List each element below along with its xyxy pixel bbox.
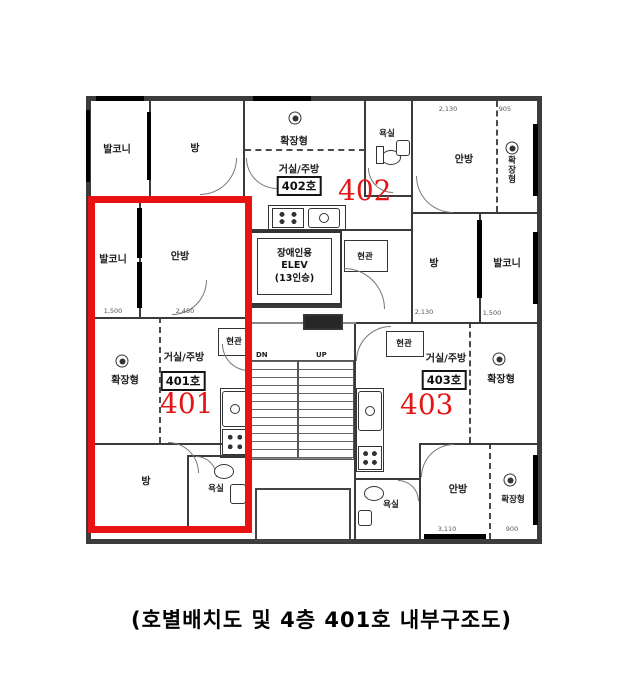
- room-label-living-403: 거실/주방: [426, 350, 466, 365]
- dimension-label: 905: [499, 105, 511, 113]
- expansion-wall-dashed: [496, 101, 498, 212]
- staircase: [248, 360, 354, 460]
- window: [477, 220, 482, 298]
- window: [533, 124, 538, 196]
- expansion-marker-icon: [506, 142, 519, 155]
- washbasin-icon: [358, 510, 372, 526]
- room-label-living-402: 거실/주방: [279, 161, 319, 176]
- dimension-label: 3,110: [438, 525, 457, 533]
- window: [253, 96, 311, 101]
- window: [533, 232, 538, 304]
- washbasin-icon: [396, 140, 410, 156]
- window: [424, 534, 486, 539]
- room-label-bath-402: 욕실: [379, 127, 395, 139]
- sink-icon: [308, 208, 340, 228]
- wall: [354, 478, 421, 480]
- expansion-wall-dashed: [245, 149, 365, 151]
- window: [533, 455, 538, 525]
- unit-badge-402: 402호: [277, 176, 322, 196]
- room-label-master-tr: 안방: [455, 151, 473, 166]
- dimension-label: 2,130: [415, 308, 434, 316]
- room-label-room: 방: [190, 140, 199, 155]
- room-label-master-br: 안방: [449, 481, 467, 496]
- stove-icon: [272, 208, 304, 228]
- sink-icon: [358, 391, 382, 431]
- room-label-expanded: 확장형: [280, 133, 308, 148]
- wall: [419, 443, 421, 539]
- stove-icon: [358, 446, 382, 470]
- highlight-rectangle-401: [88, 196, 252, 533]
- corridor-stamp: [303, 314, 343, 330]
- room-label-expanded-tr: 확장형: [505, 156, 517, 185]
- elevator-label: 장애인용 ELEV (13인승): [275, 248, 314, 285]
- room-label-entrance-402: 현관: [357, 250, 373, 262]
- expansion-marker-icon: [493, 353, 506, 366]
- wall: [411, 212, 542, 214]
- expansion-marker-icon: [289, 112, 302, 125]
- room-label-balcony: 발코니: [103, 141, 131, 156]
- unit-number-402: 402: [338, 177, 391, 205]
- room-label-balcony-rm: 발코니: [493, 255, 521, 270]
- wall: [354, 322, 542, 324]
- dimension-label: 2,130: [439, 105, 458, 113]
- window: [96, 96, 144, 101]
- elevator-car: 장애인용 ELEV (13인승): [257, 238, 332, 295]
- window: [147, 112, 151, 180]
- expansion-wall-dashed: [489, 443, 491, 539]
- entrance-porch: [255, 488, 351, 542]
- room-label-room-rm: 방: [429, 255, 438, 270]
- wall: [419, 443, 542, 445]
- floorplan-page: DN UP 장애인용 ELEV (13인승) 발코니: [0, 0, 643, 700]
- unit-badge-403: 403호: [422, 370, 467, 390]
- caption: (호별배치도 및 4층 401호 내부구조도): [0, 604, 643, 634]
- window: [86, 110, 90, 182]
- staircase-divider: [297, 360, 299, 458]
- expansion-marker-icon: [504, 474, 517, 487]
- stairs-down-label: DN: [256, 351, 268, 359]
- toilet-icon: [364, 486, 384, 501]
- room-label-expanded-br: 확장형: [501, 493, 524, 505]
- stairs-up-label: UP: [316, 351, 327, 359]
- dimension-label: 900: [506, 525, 518, 533]
- room-label-bath-403: 욕실: [383, 498, 399, 510]
- room-label-entrance-403: 현관: [396, 337, 412, 349]
- room-label-expanded-403: 확장형: [487, 371, 515, 386]
- unit-number-403: 403: [400, 391, 453, 419]
- expansion-wall-dashed: [469, 322, 471, 443]
- dimension-label: 1,500: [483, 309, 502, 317]
- toilet-tank: [376, 146, 384, 164]
